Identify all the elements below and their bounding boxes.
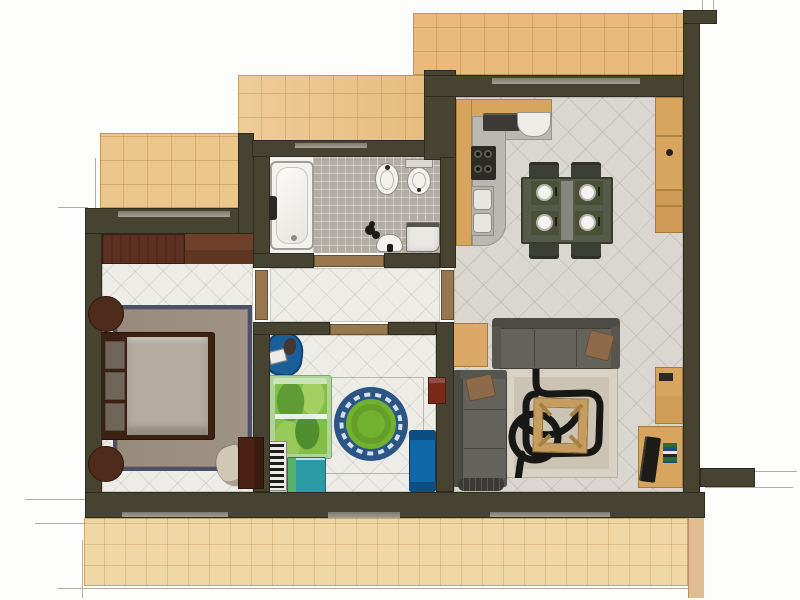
cooktop-hood <box>483 113 520 131</box>
cutlery <box>598 187 600 196</box>
kids-wall-shelf <box>428 377 446 404</box>
basin-faucet <box>387 244 393 252</box>
radiator <box>458 478 504 491</box>
hallway-east-threshold <box>441 270 454 320</box>
nightstand <box>88 446 124 482</box>
plate <box>536 214 553 231</box>
bidet <box>375 163 399 195</box>
coffee-table <box>533 398 587 452</box>
bottle <box>369 221 375 227</box>
cabinet-divider <box>655 135 683 137</box>
bathtub-basin <box>276 167 308 244</box>
apartment-floor-plan <box>0 0 800 600</box>
bathroom-door-threshold <box>314 255 384 267</box>
sketch-line <box>25 499 87 500</box>
kitchen-tall-cabinet <box>655 97 683 233</box>
hallway-floor <box>270 268 440 322</box>
bathtub-drain <box>291 235 297 241</box>
sketch-line <box>58 207 88 208</box>
table-corner-brace <box>537 434 551 448</box>
sink-basin <box>473 189 492 210</box>
wall-kids-top-west <box>253 322 330 335</box>
toiletry-bottles <box>363 221 381 239</box>
terrace-top-middle <box>238 75 428 141</box>
wall-kids-living <box>436 322 454 492</box>
bathroom-window <box>295 143 367 148</box>
sketch-line <box>755 471 797 472</box>
kitchen-double-sink <box>471 186 494 236</box>
seat-divider <box>576 330 577 367</box>
sofa-arm <box>492 326 501 369</box>
kids-duvet-stripe <box>275 414 327 419</box>
plate <box>536 184 553 201</box>
kids-terrace-window <box>328 512 400 518</box>
wall-bathroom-right <box>440 157 456 268</box>
table-center-strip <box>561 181 573 240</box>
book-stack <box>663 443 677 463</box>
cabinet-knob <box>666 149 673 156</box>
round-rug-graphic <box>332 385 410 463</box>
burner <box>484 150 492 158</box>
sofa-arm <box>611 326 620 369</box>
bedroom-door-threshold <box>255 270 268 320</box>
dining-set <box>521 162 615 262</box>
bedroom-terrace-door <box>122 512 228 517</box>
kids-round-rug <box>332 385 410 463</box>
bed-pillow <box>105 403 125 431</box>
living-side-table <box>452 323 488 367</box>
washing-machine <box>406 222 440 252</box>
dining-chair <box>571 242 601 259</box>
bidet-tap <box>385 165 390 170</box>
burner <box>474 165 482 173</box>
cutlery <box>598 217 600 226</box>
nightstand <box>88 296 124 332</box>
living-terrace-door <box>490 512 610 517</box>
kitchen-counter-left-arm <box>456 99 472 246</box>
washbasin <box>376 234 403 252</box>
wall-bathroom-bottom-east <box>384 253 440 268</box>
burner <box>484 165 492 173</box>
wall-stub-top-right <box>683 10 717 24</box>
wall-stub-right <box>700 468 755 487</box>
table-corner-brace <box>538 402 552 416</box>
bedroom-dresser <box>238 437 264 489</box>
sketch-line <box>82 540 83 598</box>
dining-table <box>521 177 613 244</box>
wall-bathroom-bottom-west <box>253 253 314 268</box>
shelf-unit <box>655 367 683 424</box>
terrace-edge-strip <box>688 518 704 598</box>
dining-chair <box>529 242 559 259</box>
wardrobe-right-section <box>184 234 254 264</box>
seat-divider <box>464 448 505 449</box>
burner <box>474 150 482 158</box>
cabinet-divider <box>655 189 683 191</box>
kids-door-threshold <box>330 324 388 335</box>
toilet-flush <box>417 188 421 192</box>
bidet-basin <box>380 170 394 190</box>
toilet-bowl <box>412 172 426 189</box>
sketch-line <box>35 523 87 524</box>
seat-divider <box>464 409 505 410</box>
cutlery <box>555 187 557 196</box>
bed-mattress <box>127 337 208 435</box>
kitchen-oven <box>517 112 551 137</box>
cutlery <box>555 217 557 226</box>
bedroom-window <box>118 211 230 217</box>
wall-kids-top-east <box>388 322 436 335</box>
sketch-line <box>705 487 793 488</box>
shelf-item <box>659 373 673 381</box>
kids-desk <box>409 430 436 492</box>
kids-cabinet <box>287 457 326 495</box>
wall-right <box>683 10 700 518</box>
sketch-line <box>58 588 698 589</box>
seat-divider <box>534 330 535 367</box>
sofa-vertical <box>452 370 507 487</box>
terrace-top-left <box>100 133 243 208</box>
table-corner-brace <box>569 403 583 417</box>
double-bed <box>98 333 214 439</box>
wall-bedroom-right-upper <box>253 140 270 268</box>
terrace-bottom <box>84 518 688 586</box>
sketch-line <box>95 158 96 213</box>
kitchen-window <box>492 78 640 84</box>
sink-basin <box>473 213 492 233</box>
plate <box>579 184 596 201</box>
toilet <box>407 167 431 195</box>
wardrobe <box>102 234 254 264</box>
bed-pillow <box>105 341 125 369</box>
bed-pillow <box>105 372 125 400</box>
terrace-top-right <box>413 13 685 75</box>
plate <box>579 214 596 231</box>
stove <box>471 146 496 180</box>
table-corner-brace <box>569 434 583 448</box>
cabinet-divider <box>655 205 683 207</box>
sofa-horizontal <box>492 318 620 369</box>
